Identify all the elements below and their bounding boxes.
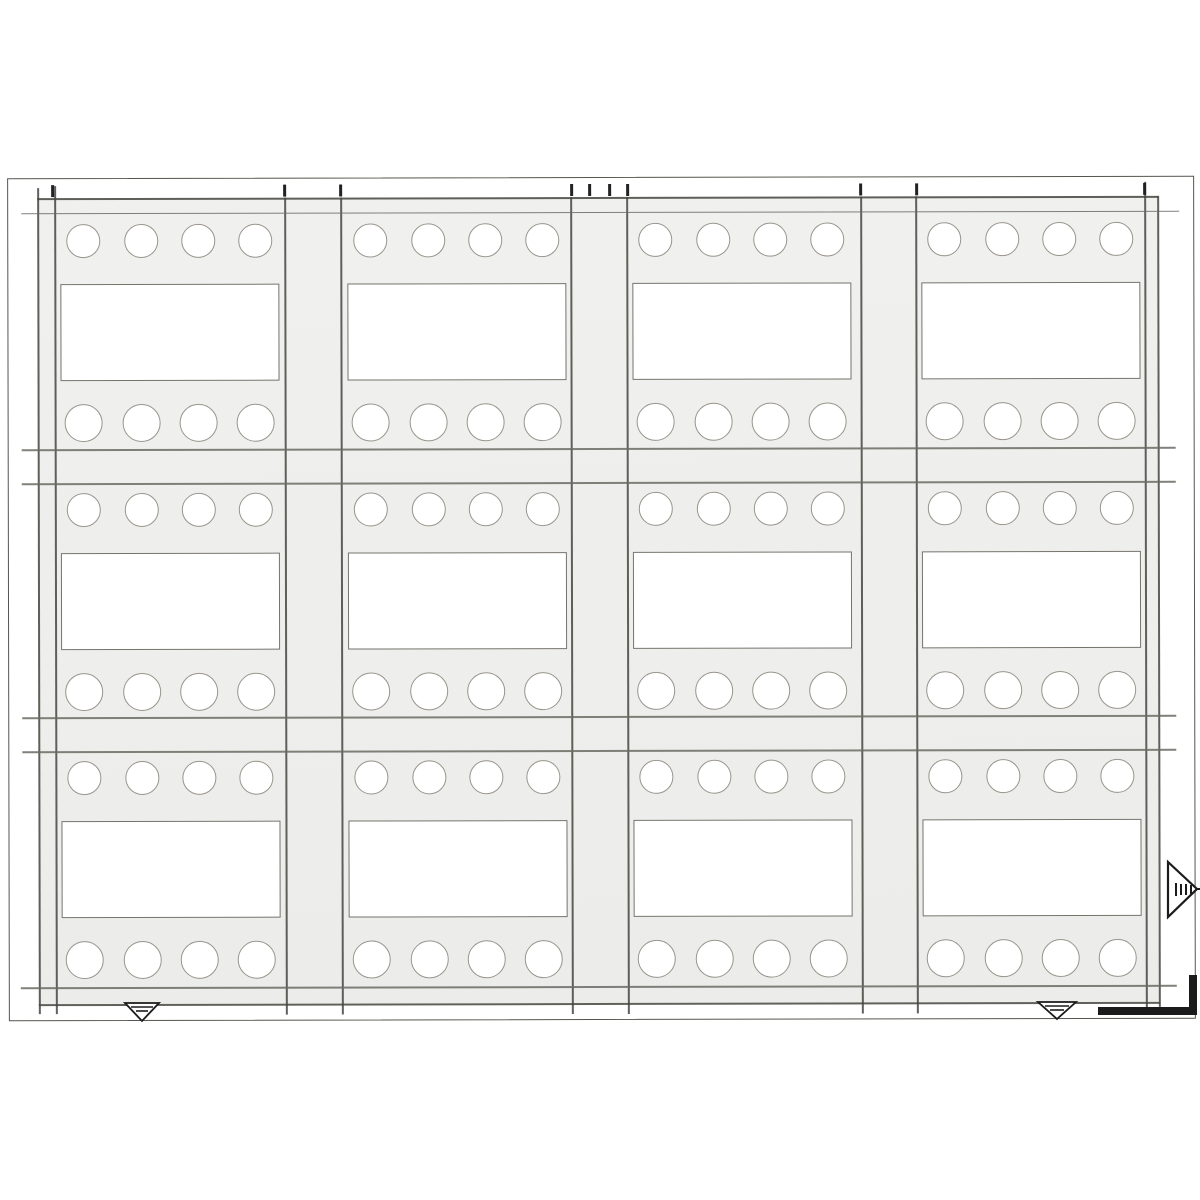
hole	[1100, 491, 1134, 525]
hole	[986, 491, 1020, 525]
hole	[1099, 939, 1137, 977]
cutout-window	[922, 819, 1141, 916]
hole	[467, 672, 505, 710]
hole	[809, 671, 847, 709]
hole	[1043, 491, 1077, 525]
cutout-window	[632, 282, 851, 379]
alignment-tick	[570, 184, 573, 196]
cutout-window	[60, 284, 279, 381]
hole	[928, 759, 962, 793]
hole	[696, 940, 734, 978]
hole	[238, 224, 272, 258]
hole	[695, 672, 733, 710]
hole	[809, 402, 847, 440]
hole	[354, 492, 388, 526]
cutout-window	[61, 821, 280, 918]
hole	[697, 492, 731, 526]
module-r2c4	[916, 481, 1145, 715]
hole	[66, 941, 104, 979]
hole	[180, 404, 218, 442]
module-r3c4	[916, 749, 1145, 985]
hole	[1098, 402, 1136, 440]
alignment-tick	[51, 185, 54, 197]
hole	[468, 940, 506, 978]
hole	[124, 224, 158, 258]
hole	[928, 491, 962, 525]
hole	[637, 672, 675, 710]
module-r1c4	[915, 212, 1144, 447]
hole	[123, 673, 161, 711]
hole	[1100, 759, 1134, 793]
hole	[181, 224, 215, 258]
alignment-tick	[1143, 183, 1146, 195]
hole	[353, 223, 387, 257]
hole	[469, 760, 503, 794]
hole	[752, 403, 790, 441]
hole	[410, 403, 448, 441]
hole	[67, 761, 101, 795]
alignment-tick	[626, 184, 629, 196]
hole	[467, 403, 505, 441]
hole	[410, 672, 448, 710]
module-r1c1	[54, 214, 284, 449]
cutout-window	[921, 282, 1140, 379]
hole	[352, 672, 390, 710]
hole	[927, 939, 965, 977]
module-r3c3	[627, 749, 861, 985]
hole	[239, 493, 273, 527]
hole	[411, 940, 449, 978]
hole	[238, 941, 276, 979]
hole	[639, 492, 673, 526]
hole	[237, 404, 275, 442]
hole	[984, 671, 1022, 709]
module-r1c3	[626, 212, 860, 447]
cutout-window	[348, 820, 567, 917]
module-r2c3	[627, 481, 861, 715]
hole	[811, 759, 845, 793]
hole	[986, 759, 1020, 793]
hole	[123, 404, 161, 442]
module-r3c2	[342, 750, 571, 986]
hole	[125, 493, 159, 527]
hole	[637, 403, 675, 441]
hole	[125, 761, 159, 795]
module-r2c2	[342, 482, 571, 716]
hole	[526, 492, 560, 526]
hole	[412, 760, 446, 794]
alignment-tick	[859, 183, 862, 195]
hole	[752, 672, 790, 710]
hole	[239, 761, 273, 795]
scanned-drawing-canvas	[0, 0, 1200, 1200]
hole	[638, 940, 676, 978]
hole	[526, 760, 560, 794]
hole	[754, 760, 788, 794]
hole	[1098, 671, 1136, 709]
hole	[984, 402, 1022, 440]
hole	[985, 939, 1023, 977]
hole	[354, 760, 388, 794]
hole	[412, 492, 446, 526]
hole	[411, 223, 445, 257]
alignment-tick	[608, 184, 611, 196]
cutout-window	[61, 553, 280, 650]
alignment-tick	[339, 185, 342, 197]
hole	[1099, 222, 1133, 256]
hole	[695, 403, 733, 441]
hole	[1042, 222, 1076, 256]
cutout-window	[922, 551, 1141, 648]
hole	[353, 940, 391, 978]
hole	[753, 940, 791, 978]
hole	[182, 761, 216, 795]
hole	[524, 403, 562, 441]
alignment-tick	[915, 183, 918, 195]
cutout-window	[348, 552, 567, 649]
hole	[468, 223, 502, 257]
hole	[926, 671, 964, 709]
hole	[524, 672, 562, 710]
hole	[811, 491, 845, 525]
drawing-sheet	[0, 0, 1200, 1200]
hole	[180, 673, 218, 711]
hole	[181, 941, 219, 979]
hole	[753, 223, 787, 257]
hole	[182, 493, 216, 527]
hole	[927, 222, 961, 256]
hole	[810, 222, 844, 256]
hole	[237, 673, 275, 711]
hole	[1043, 759, 1077, 793]
hole	[469, 492, 503, 526]
hole	[985, 222, 1019, 256]
hole	[638, 223, 672, 257]
hole	[1042, 939, 1080, 977]
hole	[66, 224, 100, 258]
hole	[639, 760, 673, 794]
hole	[1041, 671, 1079, 709]
hole	[810, 939, 848, 977]
hole	[65, 673, 103, 711]
cutout-window	[347, 283, 566, 380]
hole	[754, 492, 788, 526]
cutout-window	[633, 819, 852, 916]
hole	[697, 760, 731, 794]
module-r1c2	[341, 213, 570, 448]
hole	[1041, 402, 1079, 440]
hole	[525, 940, 563, 978]
hole	[926, 402, 964, 440]
module-r3c1	[55, 751, 285, 987]
hole	[696, 223, 730, 257]
hole	[65, 404, 103, 442]
hole	[525, 223, 559, 257]
module-r2c1	[55, 483, 285, 717]
cutout-window	[633, 551, 852, 648]
hole	[67, 493, 101, 527]
alignment-tick	[588, 184, 591, 196]
alignment-tick	[283, 185, 286, 197]
hole	[124, 941, 162, 979]
hole	[352, 403, 390, 441]
